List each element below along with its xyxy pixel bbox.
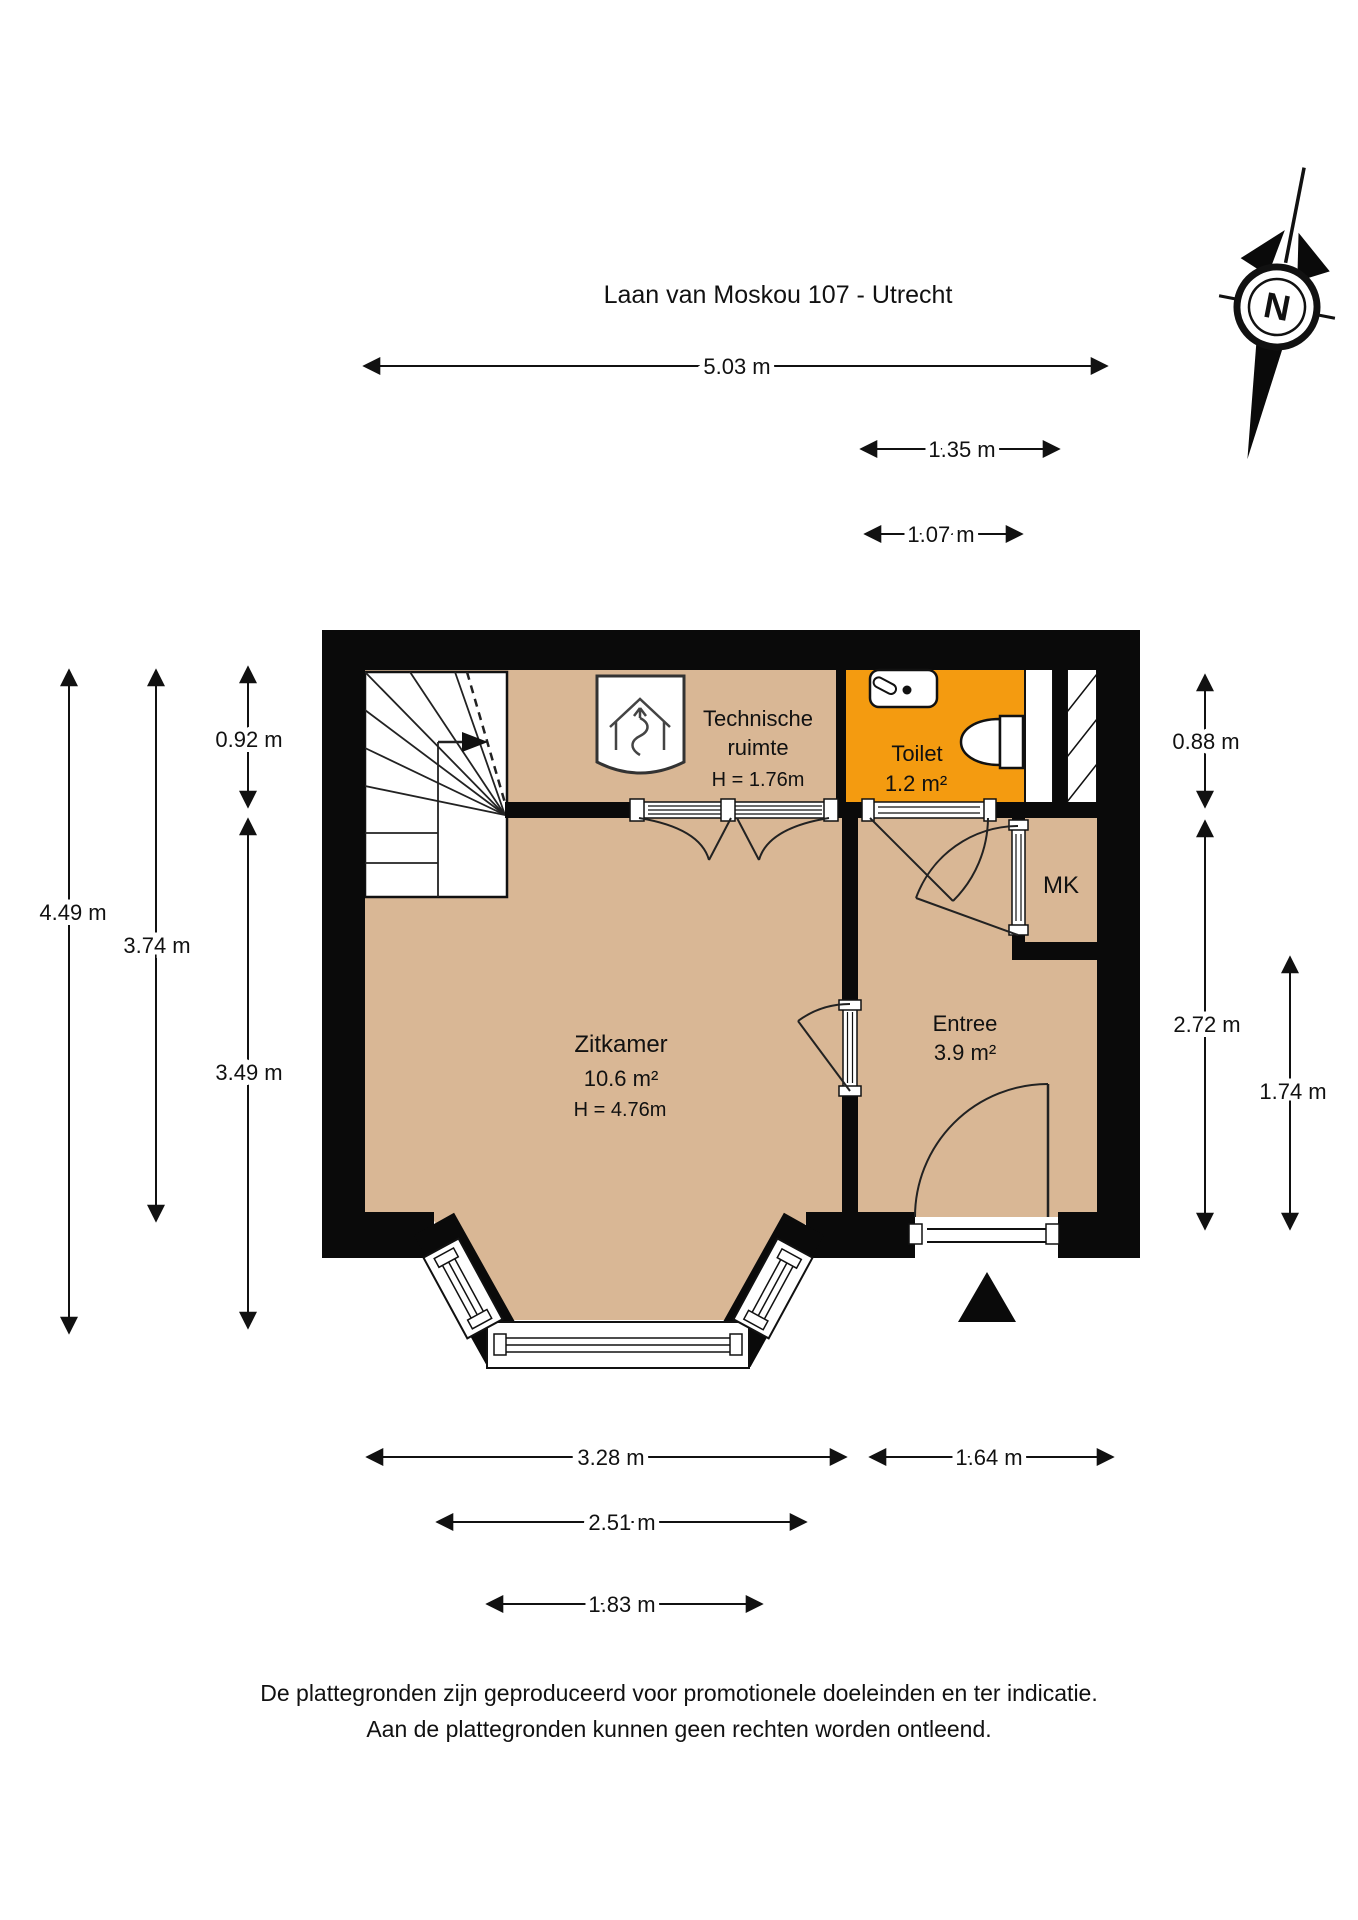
dim-bottom-bay: 2.51 m	[588, 1510, 655, 1535]
shaft-niche	[1025, 667, 1053, 807]
floorplan-drawing: Laan van Moskou 107 - Utrecht N	[0, 0, 1358, 1920]
dim-bottom-entree: 1.64 m	[955, 1445, 1022, 1470]
bay-bottom-window	[487, 1322, 749, 1368]
dim-left-total: 4.49 m	[39, 900, 106, 925]
toilet-area: 1.2 m²	[885, 771, 947, 796]
entree-name: Entree	[933, 1011, 998, 1036]
staircase	[365, 672, 507, 897]
technische-ruimte-height: H = 1.76m	[712, 769, 805, 791]
zitkamer-area: 10.6 m²	[584, 1066, 659, 1091]
technische-ruimte-name-line2: ruimte	[727, 735, 788, 760]
dim-bottom-window: 1.83 m	[588, 1592, 655, 1617]
dim-left-top: 0.92 m	[215, 727, 282, 752]
dim-top-door: 1.07 m	[907, 522, 974, 547]
compass-north-icon: N	[1190, 156, 1358, 470]
dim-top-entree: 1.35 m	[928, 437, 995, 462]
dim-left-bottom: 3.49 m	[215, 1060, 282, 1085]
dim-right-top: 0.88 m	[1172, 729, 1239, 754]
entrance-arrow-icon	[958, 1272, 1016, 1322]
dim-right-mid: 2.72 m	[1173, 1012, 1240, 1037]
zitkamer-name: Zitkamer	[574, 1031, 667, 1058]
room-label-zitkamer: Zitkamer 10.6 m² H = 4.76m	[574, 1031, 668, 1121]
page-title: Laan van Moskou 107 - Utrecht	[604, 281, 953, 309]
dim-right-entree: 1.74 m	[1259, 1079, 1326, 1104]
disclaimer-line2: Aan de plattegronden kunnen geen rechten…	[366, 1716, 991, 1742]
dim-left-inner: 3.74 m	[123, 933, 190, 958]
boiler-icon	[597, 676, 684, 773]
room-label-mk: MK	[1043, 872, 1079, 899]
dim-top-width: 5.03 m	[703, 354, 770, 379]
toilet-name: Toilet	[891, 741, 942, 766]
disclaimer-line1: De plattegronden zijn geproduceerd voor …	[260, 1680, 1098, 1706]
zitkamer-height: H = 4.76m	[574, 1099, 667, 1121]
entree-area: 3.9 m²	[934, 1040, 996, 1065]
technische-ruimte-name-line1: Technische	[703, 706, 813, 731]
washbasin	[870, 670, 937, 707]
floorplan-page: Laan van Moskou 107 - Utrecht N	[0, 0, 1358, 1920]
hatched-void	[1067, 667, 1097, 807]
dim-bottom-zitkamer: 3.28 m	[577, 1445, 644, 1470]
